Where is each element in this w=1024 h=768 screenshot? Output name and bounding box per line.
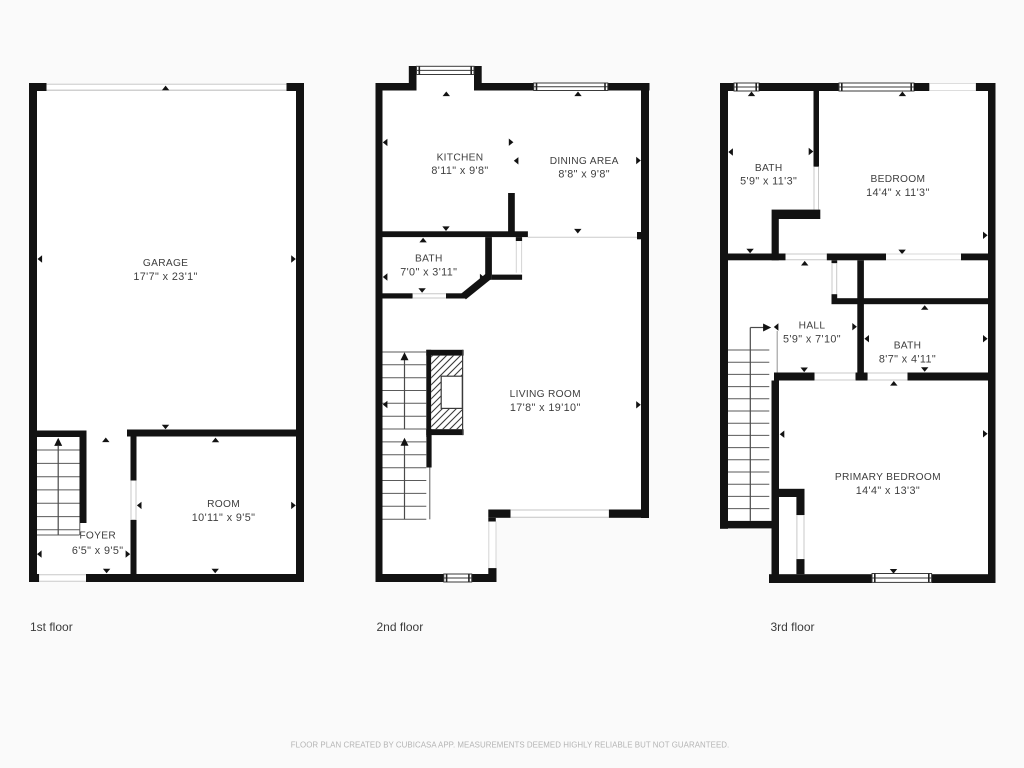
svg-text:8'8" x 9'8": 8'8" x 9'8"	[558, 169, 610, 181]
svg-text:HALL: HALL	[799, 321, 826, 332]
svg-text:10'11" x 9'5": 10'11" x 9'5"	[192, 512, 256, 524]
svg-text:3rd floor: 3rd floor	[771, 620, 815, 634]
svg-text:BATH: BATH	[755, 163, 783, 174]
svg-text:LIVING ROOM: LIVING ROOM	[510, 389, 581, 400]
svg-text:17'8" x 19'10": 17'8" x 19'10"	[510, 402, 581, 414]
svg-text:14'4" x 13'3": 14'4" x 13'3"	[856, 485, 920, 497]
svg-text:8'7" x 4'11": 8'7" x 4'11"	[879, 354, 936, 366]
svg-text:14'4" x 11'3": 14'4" x 11'3"	[866, 187, 930, 199]
svg-text:5'9" x 7'10": 5'9" x 7'10"	[783, 333, 841, 345]
svg-text:6'5" x 9'5": 6'5" x 9'5"	[72, 545, 124, 557]
svg-text:KITCHEN: KITCHEN	[437, 152, 484, 163]
svg-text:2nd floor: 2nd floor	[377, 620, 424, 634]
svg-text:BATH: BATH	[894, 341, 922, 352]
svg-text:BATH: BATH	[415, 254, 443, 265]
svg-text:ROOM: ROOM	[207, 499, 240, 510]
svg-text:PRIMARY BEDROOM: PRIMARY BEDROOM	[835, 472, 941, 483]
svg-text:5'9" x 11'3": 5'9" x 11'3"	[740, 176, 797, 188]
svg-text:DINING AREA: DINING AREA	[550, 156, 619, 167]
svg-text:GARAGE: GARAGE	[143, 258, 188, 269]
svg-text:7'0" x 3'11": 7'0" x 3'11"	[400, 266, 457, 278]
svg-text:FLOOR PLAN CREATED BY CUBICASA: FLOOR PLAN CREATED BY CUBICASA APP. MEAS…	[291, 741, 730, 750]
svg-text:17'7" x 23'1": 17'7" x 23'1"	[133, 271, 197, 283]
svg-text:1st floor: 1st floor	[30, 620, 73, 634]
svg-text:8'11" x 9'8": 8'11" x 9'8"	[431, 165, 488, 177]
svg-text:FOYER: FOYER	[79, 530, 116, 541]
svg-text:BEDROOM: BEDROOM	[871, 174, 926, 185]
